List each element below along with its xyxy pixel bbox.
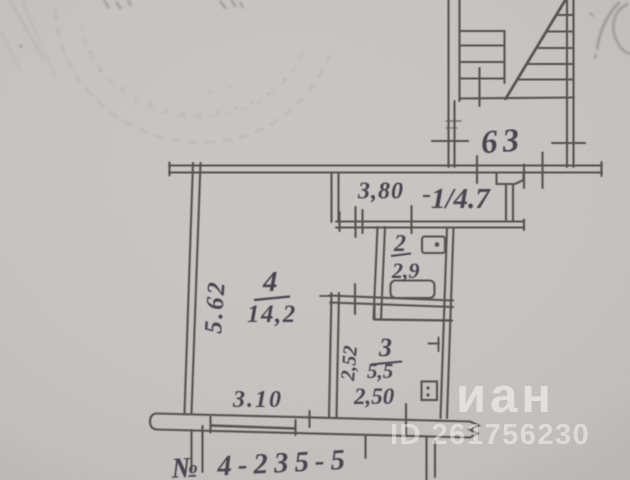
svg-text:2: 2 (393, 231, 406, 257)
svg-text:2,9: 2,9 (391, 258, 420, 283)
svg-text:63: 63 (480, 122, 525, 161)
svg-text:3.10: 3.10 (232, 387, 283, 413)
svg-text:ID 261756230: ID 261756230 (390, 419, 590, 451)
svg-text:3: 3 (378, 333, 392, 362)
svg-text:2,50: 2,50 (353, 384, 395, 409)
svg-text:5.62: 5.62 (200, 279, 231, 335)
svg-text:14,2: 14,2 (247, 301, 297, 328)
svg-text:иан: иан (456, 369, 555, 423)
svg-text:2,52: 2,52 (337, 345, 362, 383)
svg-text:1/4.7: 1/4.7 (431, 183, 491, 215)
svg-text:3,80: 3,80 (357, 179, 404, 205)
svg-text:5,5: 5,5 (367, 359, 393, 383)
svg-text:4: 4 (262, 266, 278, 298)
